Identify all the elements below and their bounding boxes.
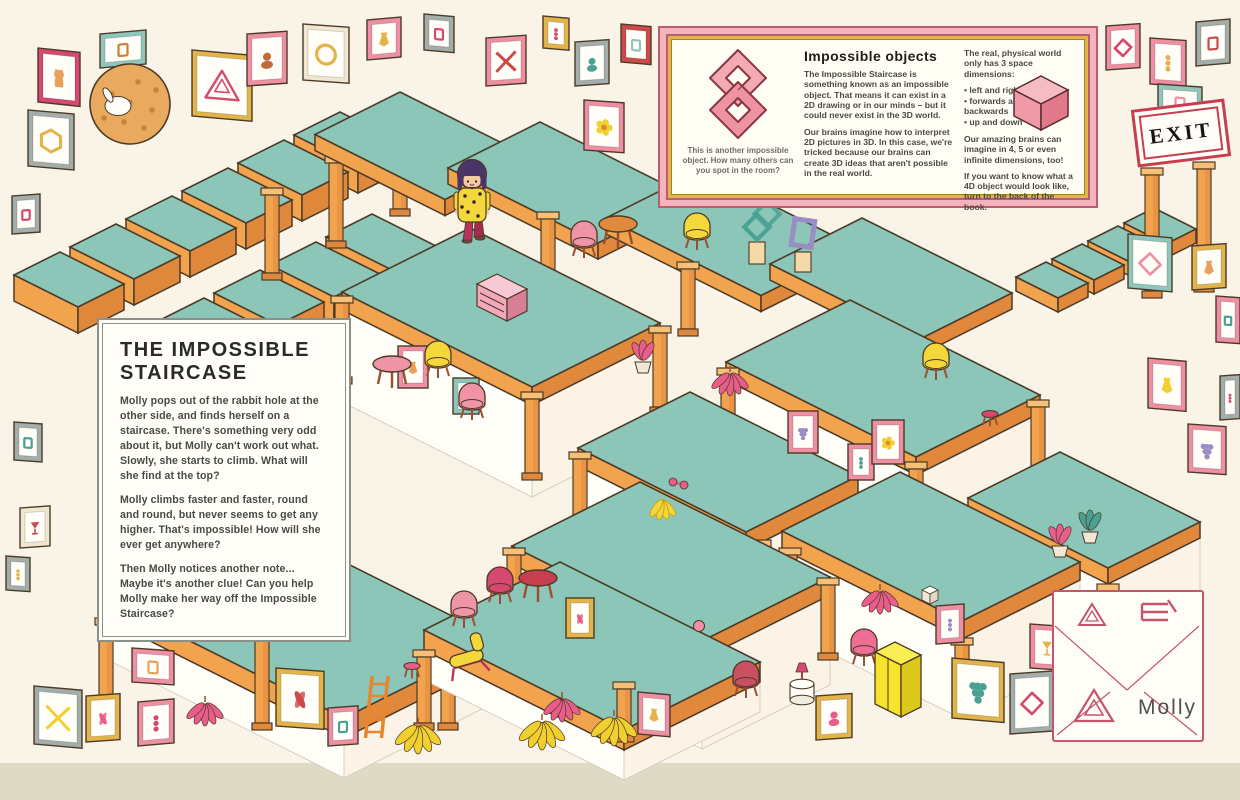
picture-frame bbox=[1010, 671, 1054, 734]
impossible-prongs-icon bbox=[1142, 600, 1176, 620]
picture-frame bbox=[12, 194, 40, 234]
story-paragraph: Then Molly notices another note... Maybe… bbox=[120, 562, 328, 622]
furniture-chair bbox=[733, 661, 759, 698]
picture-frame bbox=[192, 50, 252, 121]
page-title: THE IMPOSSIBLE STAIRCASE bbox=[120, 339, 325, 385]
furniture-chair bbox=[923, 343, 949, 380]
exit-sign-label: EXIT bbox=[1148, 117, 1214, 150]
picture-frame bbox=[584, 100, 624, 153]
picture-frame bbox=[1192, 244, 1226, 290]
info-box-frame: This is another impossible object. How m… bbox=[658, 26, 1098, 208]
picture-frame bbox=[1216, 296, 1240, 344]
furniture-chair bbox=[425, 341, 451, 378]
furniture-chair bbox=[851, 629, 877, 666]
furniture-cookie bbox=[90, 64, 170, 144]
picture-frame bbox=[247, 31, 287, 86]
info-paragraph: The Impossible Staircase is something kn… bbox=[804, 69, 954, 121]
picture-frame bbox=[1220, 375, 1240, 420]
info-paragraph: Our brains imagine how to interpret 2D p… bbox=[804, 127, 954, 179]
picture-frame bbox=[20, 506, 50, 548]
picture-frame bbox=[424, 14, 454, 53]
small-triangle-icon bbox=[1079, 604, 1105, 625]
picture-frame bbox=[328, 706, 358, 746]
picture-frame bbox=[936, 604, 964, 644]
picture-frame bbox=[138, 699, 174, 746]
picture-frame bbox=[276, 668, 324, 729]
info-box: This is another impossible object. How m… bbox=[671, 39, 1085, 195]
picture-frame bbox=[1128, 234, 1172, 292]
furniture-chair bbox=[571, 221, 597, 258]
book-spread: THE IMPOSSIBLE STAIRCASE Molly pops out … bbox=[0, 0, 1240, 800]
picture-frame bbox=[1150, 38, 1186, 87]
info-paragraph: If you want to know what a 4D object wou… bbox=[964, 171, 1074, 212]
cube-icon bbox=[1010, 74, 1072, 132]
picture-frame bbox=[1188, 424, 1226, 475]
picture-frame bbox=[132, 648, 174, 685]
info-paragraph: Our amazing brains can imagine in 4, 5 o… bbox=[964, 134, 1074, 165]
picture-frame bbox=[486, 35, 526, 86]
story-box: THE IMPOSSIBLE STAIRCASE Molly pops out … bbox=[97, 318, 351, 642]
molly-character bbox=[454, 160, 490, 244]
picture-frame bbox=[952, 658, 1004, 723]
exit-sign-inner: EXIT bbox=[1139, 106, 1224, 159]
info-box-heading: Impossible objects bbox=[804, 48, 954, 64]
furniture-chair bbox=[459, 383, 485, 420]
story-box-inner: THE IMPOSSIBLE STAIRCASE Molly pops out … bbox=[102, 323, 346, 637]
picture-frame bbox=[1106, 24, 1140, 70]
info-box-illustration-column: This is another impossible object. How m… bbox=[682, 48, 794, 186]
picture-frame bbox=[367, 17, 401, 60]
impossible-object-icon bbox=[704, 48, 772, 140]
info-box-dimensions-column: The real, physical world only has 3 spac… bbox=[964, 48, 1074, 186]
picture-frame bbox=[14, 422, 42, 462]
furniture-wardrobe bbox=[875, 642, 921, 717]
picture-frame bbox=[816, 693, 852, 740]
molly-envelope: Molly bbox=[1052, 590, 1204, 742]
story-paragraph: Molly pops out of the rabbit hole at the… bbox=[120, 394, 328, 484]
info-box-text-column: Impossible objects The Impossible Stairc… bbox=[804, 48, 954, 186]
furniture-chair bbox=[684, 213, 710, 250]
picture-frame bbox=[543, 16, 569, 50]
envelope-name: Molly bbox=[1138, 696, 1197, 720]
picture-frame bbox=[621, 24, 651, 65]
picture-frame bbox=[1148, 358, 1186, 411]
picture-frame bbox=[1196, 19, 1230, 66]
furniture-ball bbox=[694, 621, 705, 632]
picture-frame bbox=[788, 411, 818, 453]
furniture-chair bbox=[451, 591, 477, 628]
picture-frame bbox=[86, 694, 120, 742]
exit-sign: EXIT bbox=[1131, 98, 1231, 167]
furniture-chair bbox=[487, 567, 513, 604]
picture-frame bbox=[575, 40, 609, 86]
picture-frame bbox=[28, 110, 74, 170]
picture-frame bbox=[872, 420, 904, 464]
picture-frame bbox=[6, 556, 30, 592]
story-paragraph: Molly climbs faster and faster, round an… bbox=[120, 493, 328, 553]
picture-frame bbox=[566, 598, 594, 638]
picture-frame bbox=[638, 692, 670, 737]
picture-frame bbox=[38, 48, 80, 106]
picture-frame bbox=[848, 444, 874, 480]
picture-frame bbox=[34, 686, 82, 748]
info-box-caption: This is another impossible object. How m… bbox=[682, 146, 794, 176]
picture-frame bbox=[100, 30, 146, 68]
info-box-gold-frame: This is another impossible object. How m… bbox=[666, 34, 1090, 200]
furniture-dice bbox=[922, 586, 938, 604]
picture-frame bbox=[303, 24, 349, 83]
